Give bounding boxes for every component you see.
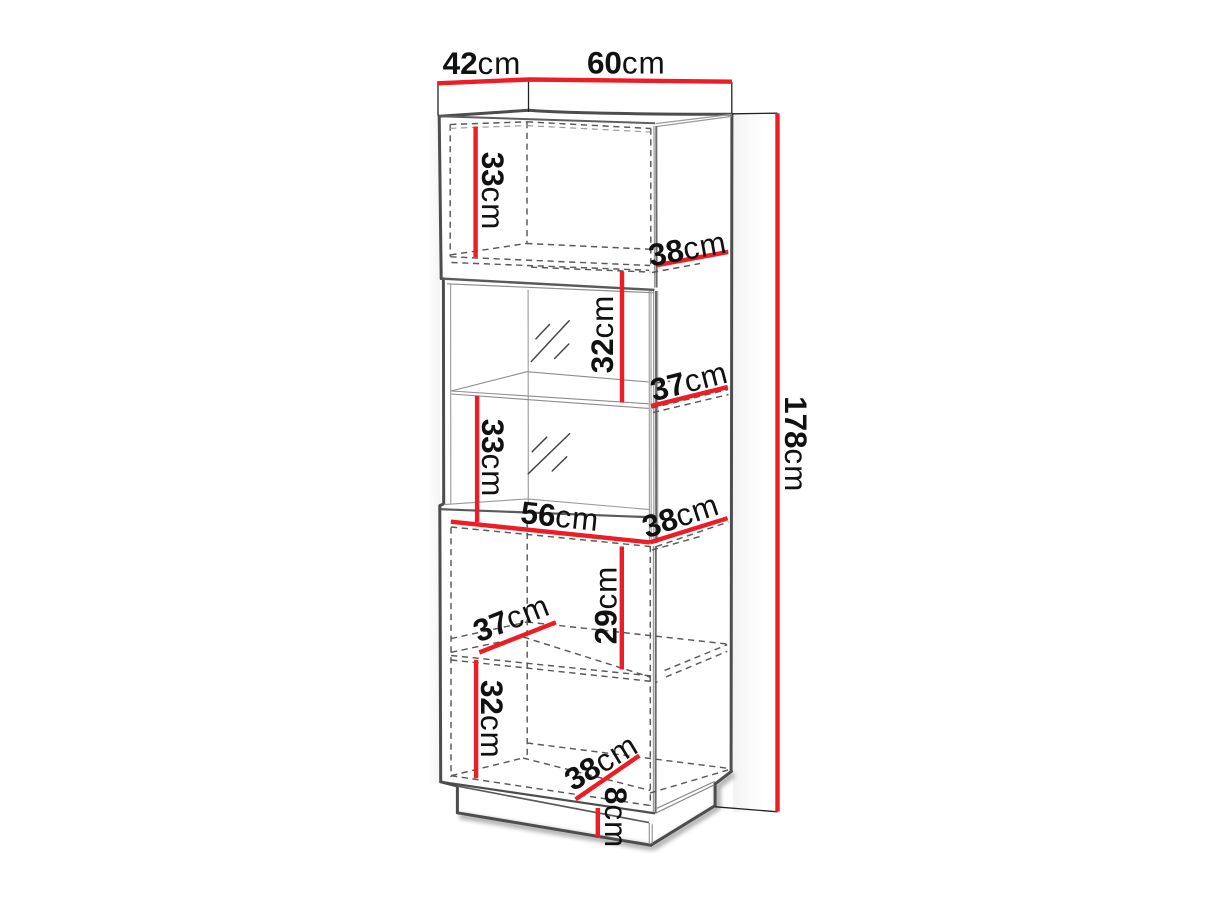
svg-text:32cm: 32cm (474, 680, 510, 759)
svg-text:60cm: 60cm (587, 45, 666, 81)
svg-text:33cm: 33cm (475, 152, 511, 231)
svg-text:42cm: 42cm (443, 45, 522, 81)
svg-text:29cm: 29cm (588, 566, 624, 645)
svg-text:37cm: 37cm (646, 354, 731, 408)
svg-text:33cm: 33cm (475, 419, 511, 498)
svg-text:32cm: 32cm (584, 295, 620, 374)
svg-text:38cm: 38cm (638, 486, 724, 545)
svg-text:38cm: 38cm (646, 224, 730, 274)
svg-text:178cm: 178cm (778, 396, 814, 492)
svg-text:8cm: 8cm (598, 787, 634, 848)
